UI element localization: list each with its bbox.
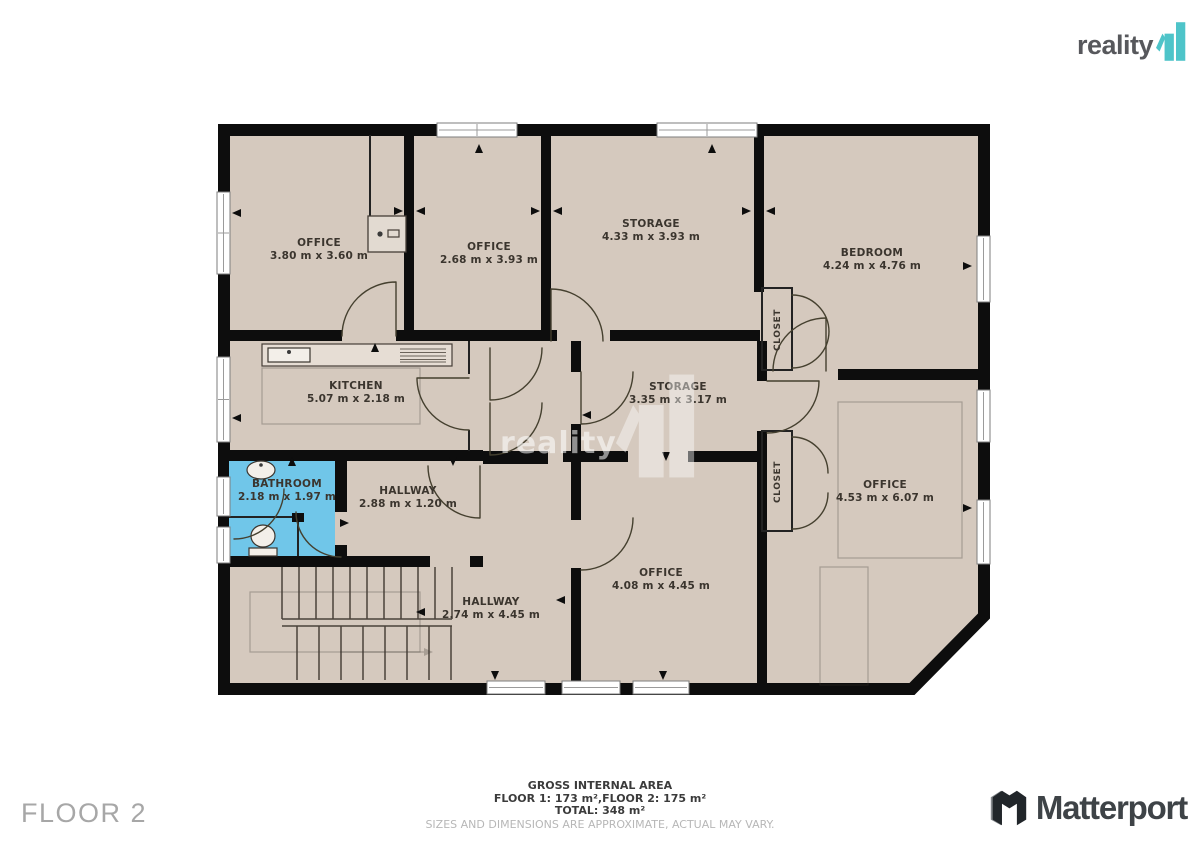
watermark-reality11-icon	[616, 374, 696, 478]
toilet-bowl-icon	[251, 525, 275, 547]
reality11-mark-icon	[1156, 22, 1186, 61]
svg-text:HALLWAY: HALLWAY	[379, 485, 437, 497]
toilet-tank-icon	[249, 548, 277, 556]
watermark-text: reality	[500, 426, 617, 461]
reality11-logo: reality	[1077, 22, 1186, 61]
svg-text:OFFICE: OFFICE	[639, 567, 683, 579]
utility-appliance-icon	[368, 216, 406, 252]
matterport-mark-icon	[988, 787, 1029, 828]
room-closet-1: CLOSET	[773, 309, 783, 351]
floorplan-canvas: OFFICE3.80 m x 3.60 m OFFICE2.68 m x 3.9…	[0, 0, 1200, 850]
bathroom-floor	[229, 461, 335, 556]
matterport-logo-text: Matterport	[1036, 789, 1187, 827]
svg-text:OFFICE: OFFICE	[467, 241, 511, 253]
svg-text:4.08 m x 4.45 m: 4.08 m x 4.45 m	[612, 580, 710, 592]
svg-text:2.18 m x 1.97 m: 2.18 m x 1.97 m	[238, 491, 336, 503]
svg-text:2.88 m x 1.20 m: 2.88 m x 1.20 m	[359, 498, 457, 510]
matterport-logo: Matterport	[988, 787, 1187, 828]
svg-text:2.74 m x 4.45 m: 2.74 m x 4.45 m	[442, 609, 540, 621]
svg-text:2.68 m x 3.93 m: 2.68 m x 3.93 m	[440, 254, 538, 266]
reality-logo-text: reality	[1077, 32, 1153, 61]
room-bathroom: BATHROOM2.18 m x 1.97 m	[238, 478, 336, 503]
svg-text:KITCHEN: KITCHEN	[329, 380, 383, 392]
svg-text:OFFICE: OFFICE	[297, 237, 341, 249]
svg-text:4.53 m x 6.07 m: 4.53 m x 6.07 m	[836, 492, 934, 504]
svg-text:4.24 m x 4.76 m: 4.24 m x 4.76 m	[823, 260, 921, 272]
svg-text:4.33 m x 3.93 m: 4.33 m x 3.93 m	[602, 231, 700, 243]
svg-text:3.80 m x 3.60 m: 3.80 m x 3.60 m	[270, 250, 368, 262]
svg-text:STORAGE: STORAGE	[622, 218, 680, 230]
svg-text:5.07 m x 2.18 m: 5.07 m x 2.18 m	[307, 393, 405, 405]
svg-text:HALLWAY: HALLWAY	[462, 596, 520, 608]
room-closet-2: CLOSET	[773, 461, 783, 503]
svg-text:BEDROOM: BEDROOM	[841, 247, 903, 259]
svg-text:OFFICE: OFFICE	[863, 479, 907, 491]
svg-text:BATHROOM: BATHROOM	[252, 478, 322, 490]
floor-outline	[224, 130, 984, 689]
